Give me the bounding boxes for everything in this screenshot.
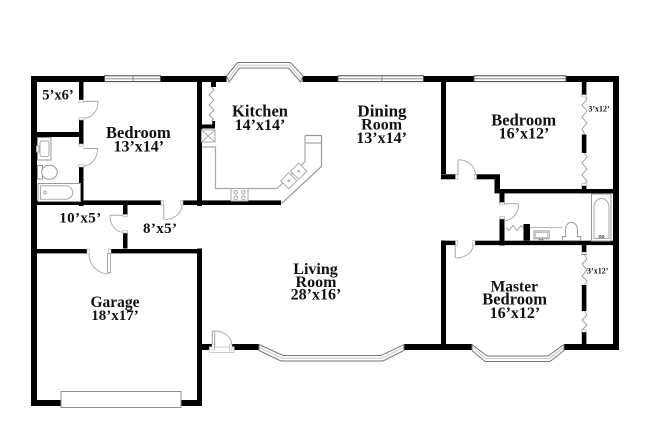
svg-text:13’x14’: 13’x14’	[113, 139, 164, 156]
svg-text:14’x14’: 14’x14’	[235, 117, 286, 134]
svg-text:8’x5’: 8’x5’	[143, 221, 178, 237]
svg-text:18’x17’: 18’x17’	[91, 308, 139, 324]
svg-text:28’x16’: 28’x16’	[291, 287, 342, 304]
svg-text:13’x14’: 13’x14’	[356, 130, 407, 147]
svg-text:16’x12’: 16’x12’	[490, 305, 541, 322]
svg-text:3’x12’: 3’x12’	[587, 267, 609, 276]
svg-text:10’x5’: 10’x5’	[59, 210, 101, 226]
svg-text:16’x12’: 16’x12’	[499, 125, 550, 142]
svg-text:5’x6’: 5’x6’	[42, 88, 73, 104]
svg-text:3’x12’: 3’x12’	[588, 104, 610, 113]
